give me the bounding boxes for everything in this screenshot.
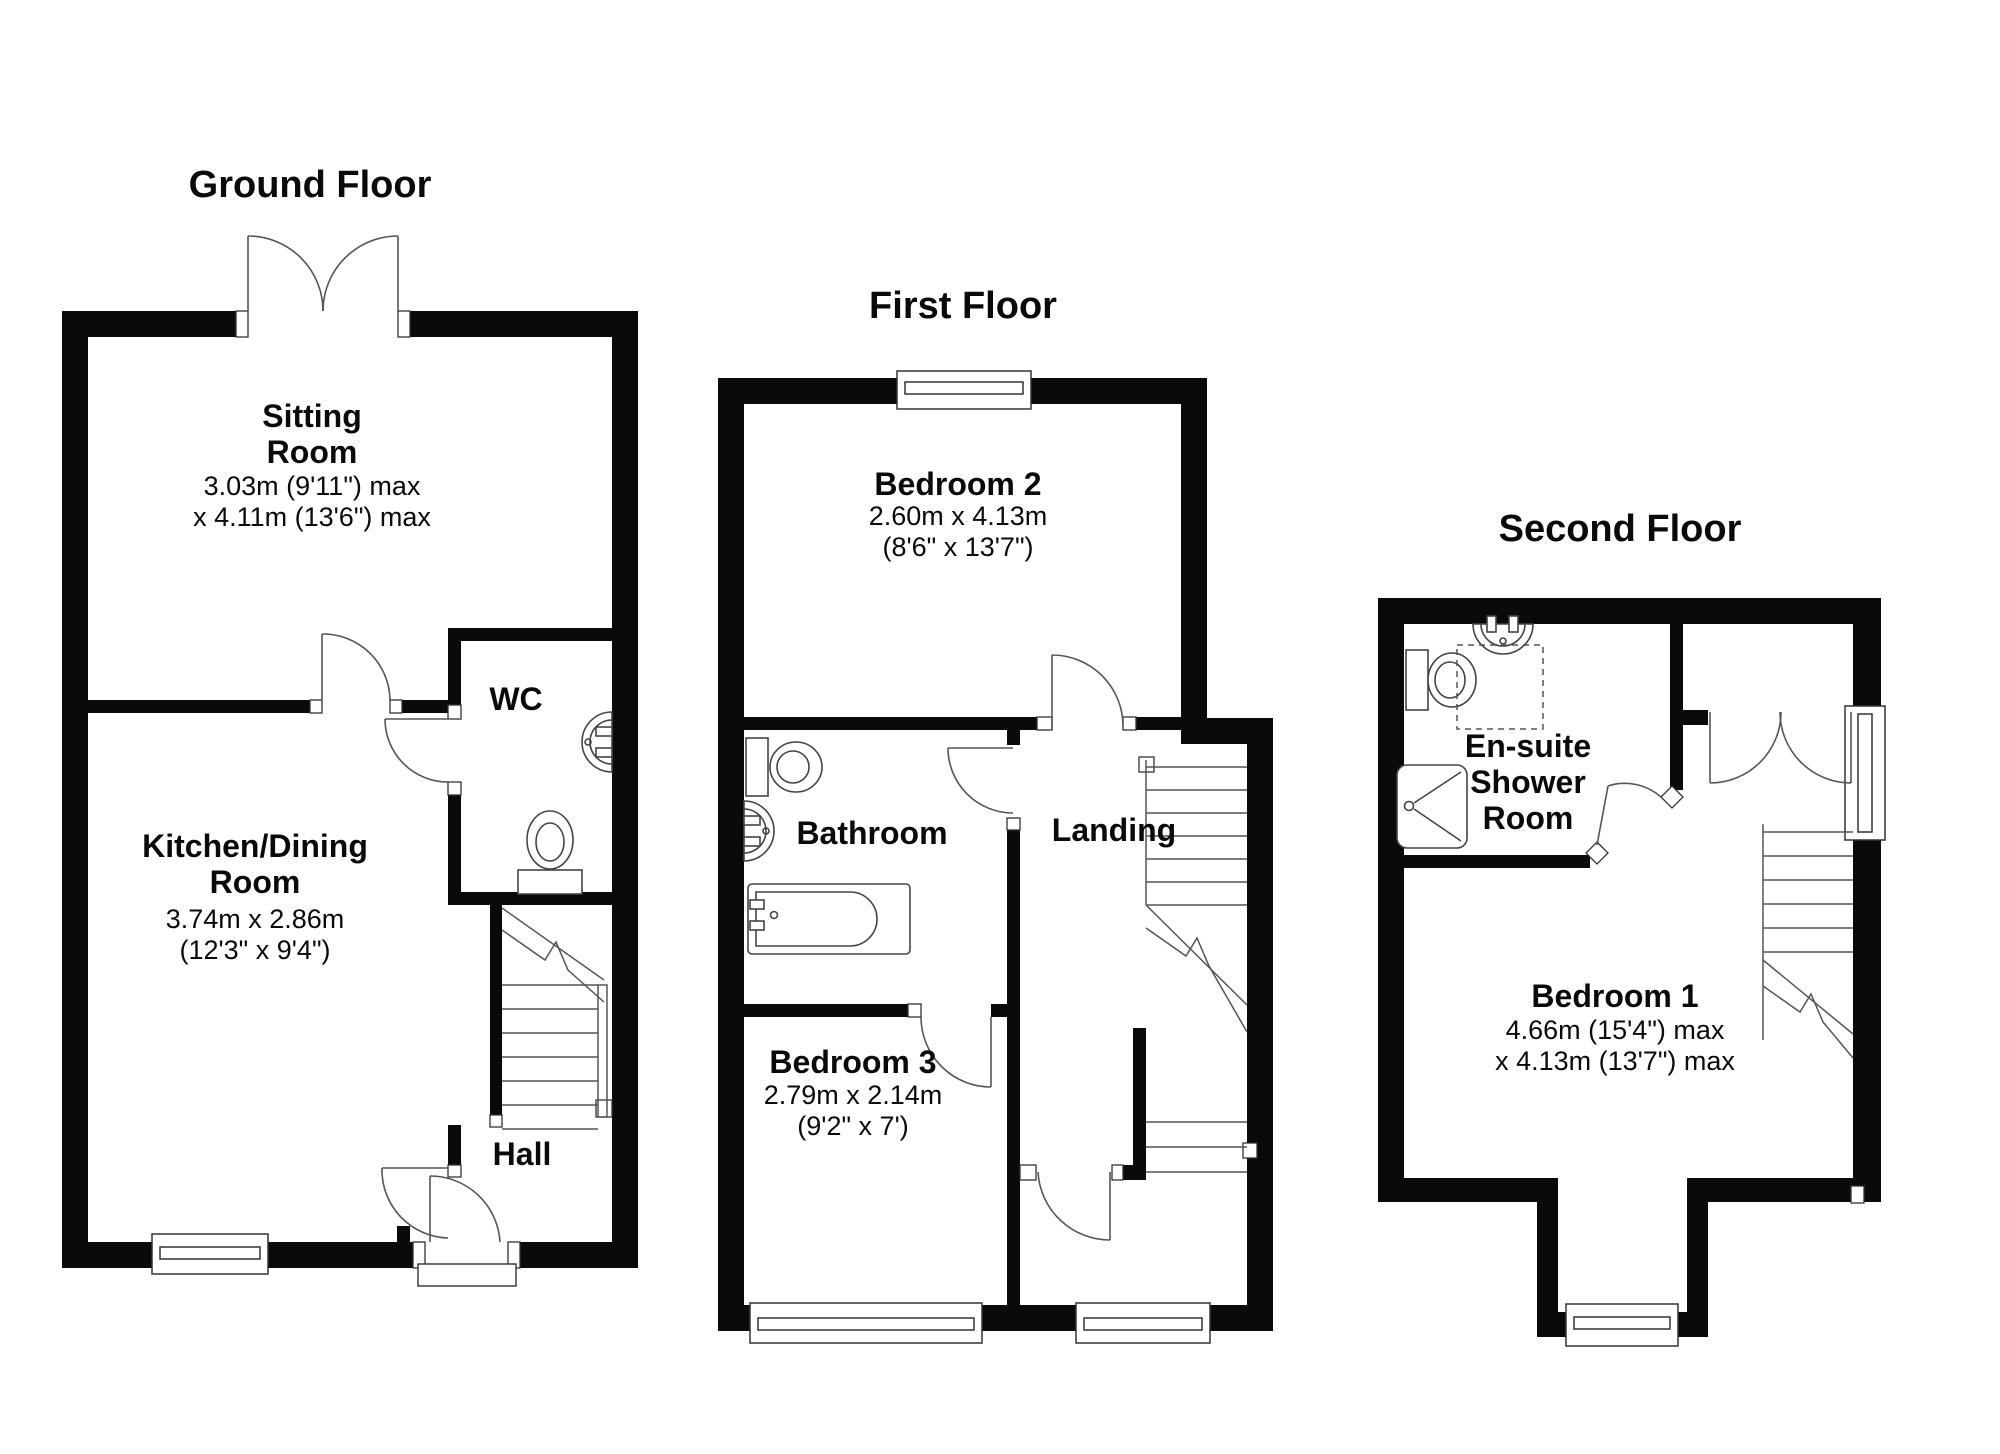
bedroom2-dims: 2.60m x 4.13m (8'6" x 13'7") <box>869 501 1048 563</box>
ground-window <box>152 1234 268 1274</box>
stair-break-line <box>1763 960 1853 1034</box>
stair-break-line <box>1146 905 1247 1005</box>
toilet-icon <box>746 738 822 796</box>
sitting-room-dims: 3.03m (9'11") max x 4.11m (13'6") max <box>193 471 431 533</box>
bedroom1-dims: 4.66m (15'4") max x 4.13m (13'7") max <box>1495 1015 1735 1077</box>
stair-break-zigzag <box>502 930 604 1002</box>
floorplan-page: Ground Floor Sitting Room 3.03m (9'11") … <box>0 0 2000 1454</box>
bathroom-door-icon <box>948 748 1013 813</box>
bath-icon <box>748 884 910 954</box>
hall-door-icon <box>382 1168 448 1238</box>
bedroom2-door-icon <box>1052 655 1123 730</box>
sitting-room-label: Sitting Room <box>262 398 362 470</box>
landing-label: Landing <box>1052 812 1176 848</box>
kitchen-room-dims: 3.74m x 2.86m (12'3" x 9'4") <box>166 904 345 966</box>
ensuite-label: En-suite Shower Room <box>1465 728 1591 836</box>
wc-sink-icon <box>582 712 612 772</box>
lobby-door-icon <box>1038 1172 1110 1240</box>
floorplan-drawing <box>0 0 2000 1454</box>
ground-floor-title: Ground Floor <box>189 164 432 206</box>
bedroom2-label: Bedroom 2 <box>874 466 1041 502</box>
stair-break-zigzag <box>1146 928 1247 1032</box>
ensuite-door-icon <box>1597 783 1661 845</box>
wc-door-icon <box>385 719 448 782</box>
second-floor-plan <box>1378 598 1885 1346</box>
stair-newel-post <box>1243 1143 1257 1158</box>
shower-tray-icon <box>1397 765 1467 848</box>
bathroom-sink-icon <box>744 801 774 861</box>
second-floor-title: Second Floor <box>1499 508 1742 550</box>
stair-newel-post <box>1851 1186 1864 1203</box>
second-stairs <box>1763 824 1853 1058</box>
hall-label: Hall <box>493 1136 552 1172</box>
kitchen-door-icon <box>322 634 390 700</box>
second-walls <box>1378 598 1881 1337</box>
front-door-threshold <box>418 1264 516 1286</box>
stair-break-line <box>502 908 604 980</box>
first-interior-walls <box>744 717 1181 1305</box>
first-floor-title: First Floor <box>869 285 1057 327</box>
bathroom-label: Bathroom <box>796 815 947 851</box>
bedroom1-label: Bedroom 1 <box>1531 978 1698 1014</box>
front-door-icon <box>418 1176 516 1286</box>
wc-label: WC <box>489 681 542 717</box>
wc-toilet-icon <box>518 811 582 894</box>
kitchen-room-label: Kitchen/Dining Room <box>142 828 368 900</box>
bedroom3-label: Bedroom 3 <box>769 1044 936 1080</box>
french-doors-icon <box>248 236 398 311</box>
wardrobe-doors-icon <box>1710 712 1851 783</box>
ground-stairs <box>502 908 607 1129</box>
bedroom3-dims: 2.79m x 2.14m (9'2" x 7') <box>764 1080 943 1142</box>
ensuite-toilet-icon <box>1406 650 1476 710</box>
ground-floor-plan <box>62 236 638 1286</box>
